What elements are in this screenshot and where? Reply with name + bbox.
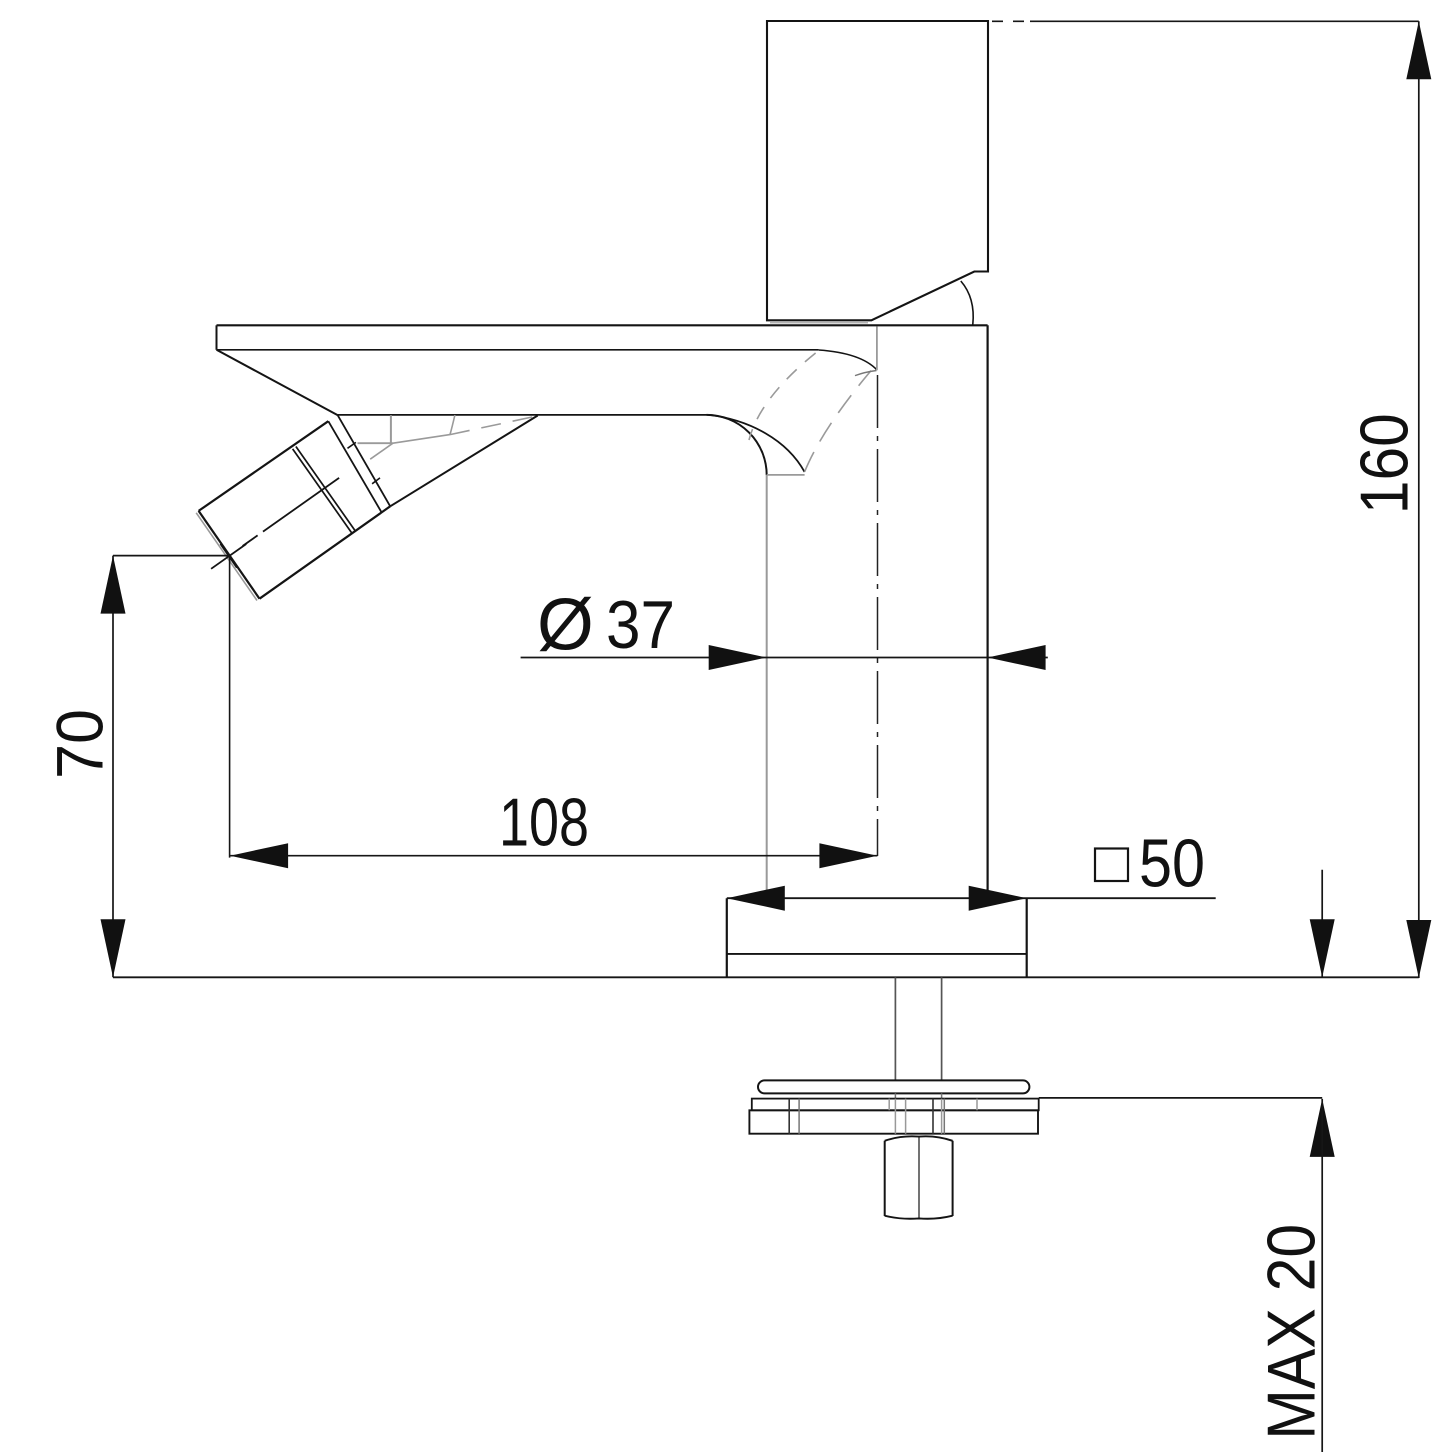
svg-text:MAX 20: MAX 20 [1254,1224,1330,1440]
svg-text:50: 50 [1139,826,1205,902]
svg-text:37: 37 [606,587,675,663]
svg-text:Ø: Ø [537,584,594,665]
svg-text:108: 108 [499,785,589,861]
svg-text:160: 160 [1347,413,1423,514]
svg-text:70: 70 [43,709,117,779]
